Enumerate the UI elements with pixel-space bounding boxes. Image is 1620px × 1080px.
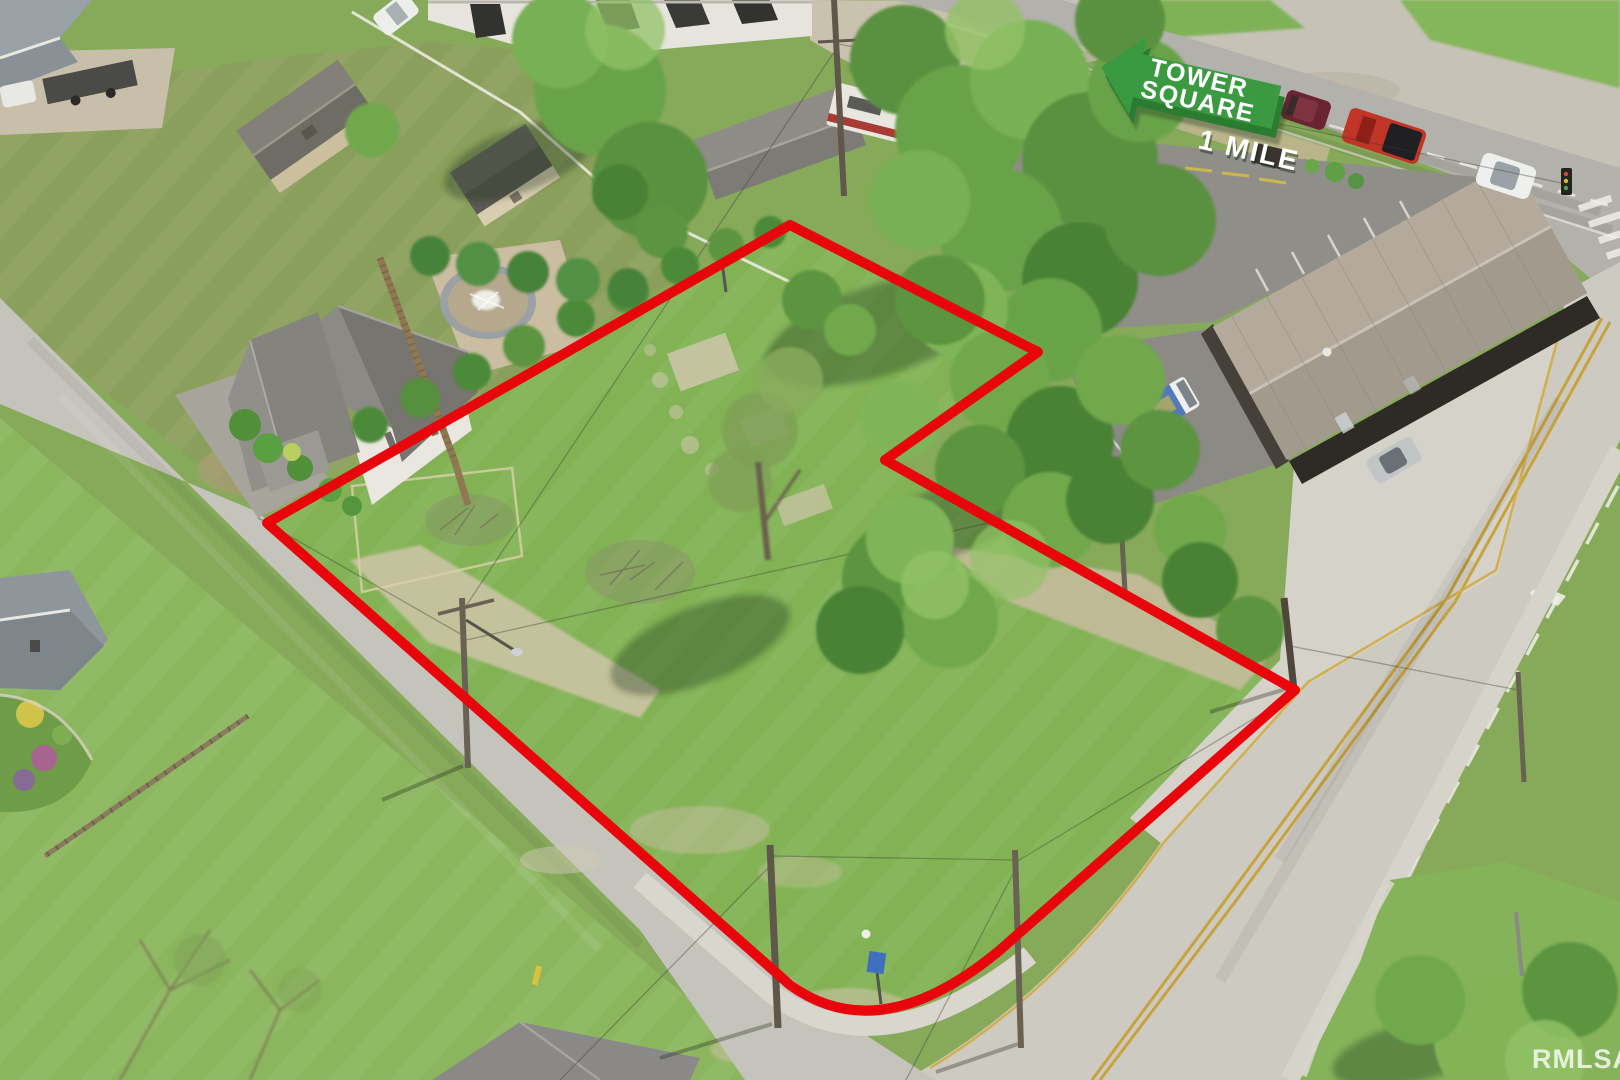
- aerial-photograph: TOWER SQUARE 1 MILE 1 MILE RMLSA: [0, 0, 1620, 1080]
- traffic-light: [1561, 168, 1572, 195]
- roof-vent: [1323, 348, 1332, 357]
- survey-marker: [862, 930, 871, 939]
- aerial-photo: TOWER SQUARE 1 MILE 1 MILE RMLSA: [0, 0, 1620, 1080]
- watermark-rmlsa: RMLSA: [1532, 1044, 1620, 1074]
